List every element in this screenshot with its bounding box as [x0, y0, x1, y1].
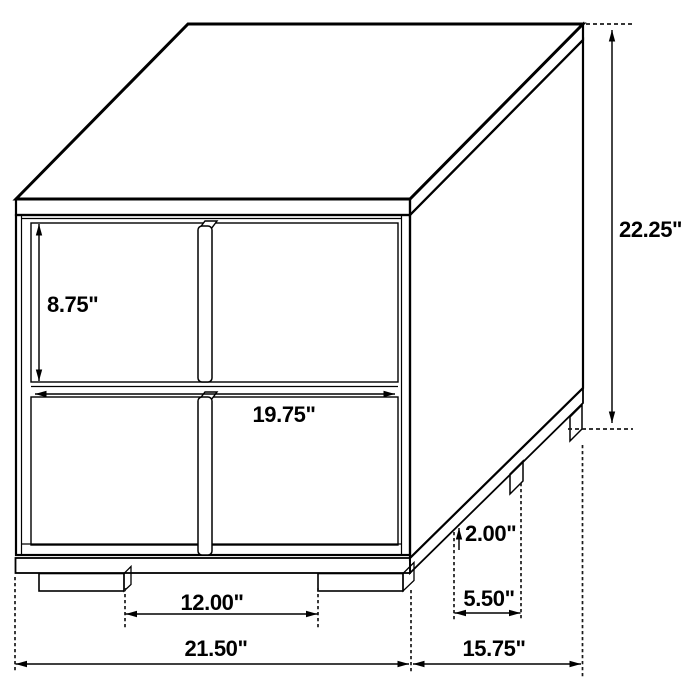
front-base-rail	[16, 558, 411, 573]
cabinet-body	[16, 24, 584, 591]
nightstand-line-drawing: 22.25" 8.75" 19.75" 2.00"	[0, 0, 700, 700]
cabinet-top-slab-right	[410, 24, 583, 215]
leg-height-label: 2.00"	[465, 521, 516, 546]
cabinet-front-face	[16, 215, 410, 555]
dimension-diagram: 22.25" 8.75" 19.75" 2.00"	[0, 0, 700, 700]
overall-height-label: 22.25"	[619, 217, 682, 242]
lower-drawer-front	[31, 397, 398, 545]
dim-front-inner-width: 19.75"	[35, 394, 395, 427]
dim-front-leg-spacing: 12.00"	[125, 588, 318, 628]
overall-width-label: 21.50"	[184, 636, 247, 661]
cabinet-side-panel	[410, 40, 583, 558]
dim-drawer-height: 8.75"	[39, 224, 98, 381]
drawer-height-label: 8.75"	[47, 292, 98, 317]
dim-overall-depth: 15.75"	[413, 445, 583, 678]
dim-overall-height: 22.25"	[568, 24, 682, 429]
upper-handle-bar	[198, 226, 212, 382]
cabinet-top-slab-front	[16, 199, 410, 215]
lower-handle-bar	[198, 397, 212, 555]
overall-depth-label: 15.75"	[462, 636, 525, 661]
front-left-leg-side	[124, 567, 131, 592]
side-back-leg	[570, 405, 582, 441]
front-right-leg-side	[403, 563, 414, 592]
front-inner-width-label: 19.75"	[252, 402, 315, 427]
front-leg-spacing-label: 12.00"	[180, 590, 243, 615]
front-right-leg	[318, 574, 403, 592]
dim-leg-height: 2.00"	[459, 521, 516, 550]
side-leg-spacing-label: 5.50"	[463, 586, 514, 611]
front-left-leg	[39, 574, 124, 592]
